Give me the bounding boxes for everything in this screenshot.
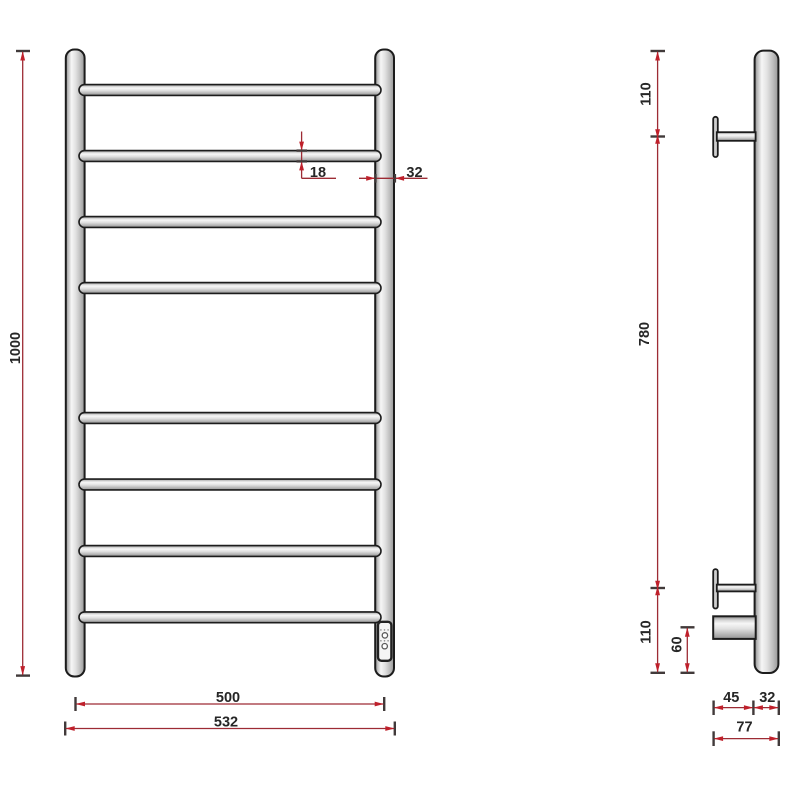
svg-text:77: 77 bbox=[736, 720, 752, 736]
svg-text:18: 18 bbox=[310, 165, 326, 181]
svg-text:532: 532 bbox=[214, 715, 238, 731]
svg-text:1000: 1000 bbox=[8, 332, 24, 364]
svg-text:110: 110 bbox=[639, 620, 655, 643]
svg-text:500: 500 bbox=[216, 690, 240, 706]
svg-text:110: 110 bbox=[639, 82, 655, 105]
svg-text:780: 780 bbox=[637, 322, 653, 346]
svg-text:45: 45 bbox=[723, 690, 739, 706]
svg-text:60: 60 bbox=[670, 636, 686, 652]
svg-text:32: 32 bbox=[406, 165, 422, 181]
svg-text:32: 32 bbox=[759, 690, 775, 706]
